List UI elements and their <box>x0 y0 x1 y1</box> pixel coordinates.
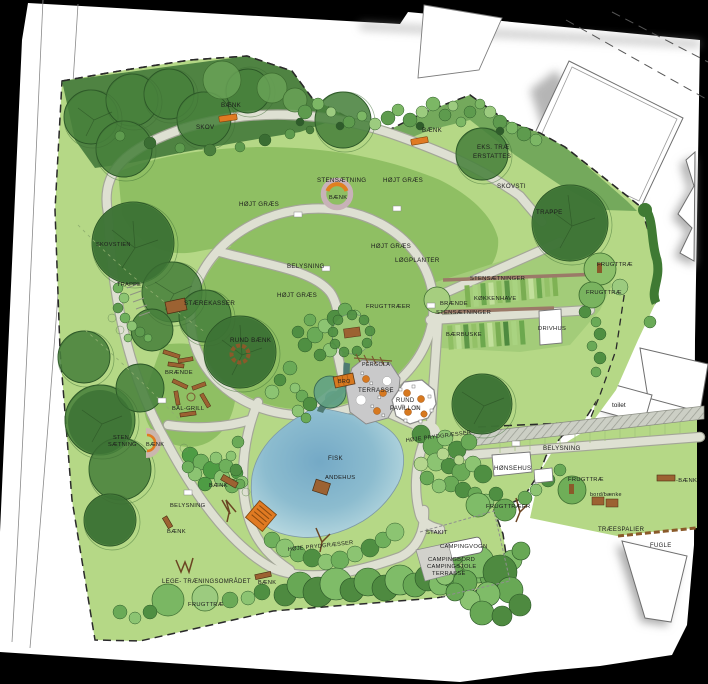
svg-text:LEGE- TRÆNINGSOMRÅDET: LEGE- TRÆNINGSOMRÅDET <box>162 578 251 585</box>
svg-text:HØNSEHUS: HØNSEHUS <box>494 465 531 472</box>
svg-text:BÆNK: BÆNK <box>146 442 164 448</box>
svg-text:BÅL-GRILL: BÅL-GRILL <box>172 405 205 412</box>
svg-text:BELYSNING: BELYSNING <box>543 445 581 452</box>
svg-text:RUND: RUND <box>396 398 415 404</box>
svg-text:SÆTNING: SÆTNING <box>108 442 137 448</box>
svg-text:STENSÆTNINGER: STENSÆTNINGER <box>470 276 525 282</box>
svg-text:ERSTATTES: ERSTATTES <box>473 153 511 160</box>
svg-text:-BÆNK: -BÆNK <box>676 478 697 484</box>
svg-text:SKOVSTI: SKOVSTI <box>497 183 526 190</box>
svg-text:STENSÆTNING: STENSÆTNING <box>317 177 366 184</box>
svg-text:FRUGTTRÆER: FRUGTTRÆER <box>486 504 531 510</box>
svg-text:HØJT GRÆS: HØJT GRÆS <box>383 177 423 184</box>
svg-text:BELYSNING: BELYSNING <box>287 263 325 270</box>
svg-text:RUND BÆNK: RUND BÆNK <box>230 337 272 344</box>
svg-text:FRUGTTRÆ: FRUGTTRÆ <box>597 262 633 268</box>
svg-text:BRO: BRO <box>338 379 351 385</box>
svg-text:SKOVSTIEN: SKOVSTIEN <box>96 242 131 248</box>
svg-text:LØGPLANTER: LØGPLANTER <box>395 257 440 264</box>
svg-text:BÆNK: BÆNK <box>329 195 347 201</box>
svg-text:FUGLE: FUGLE <box>650 543 672 549</box>
svg-text:STAKIT: STAKIT <box>426 530 448 536</box>
svg-text:STEN-: STEN- <box>113 435 131 441</box>
svg-text:CAMPINGBORD: CAMPINGBORD <box>428 557 475 563</box>
svg-text:STÆREKASSER: STÆREKASSER <box>184 300 235 307</box>
svg-text:TRÆESPALIER: TRÆESPALIER <box>598 527 645 533</box>
svg-text:CAMPINGSTOLE: CAMPINGSTOLE <box>427 564 477 570</box>
svg-text:BÆRBUSKE: BÆRBUSKE <box>446 332 482 338</box>
svg-text:FISK: FISK <box>328 455 344 462</box>
svg-text:BÆNK: BÆNK <box>422 127 443 134</box>
svg-text:bord/bænke: bord/bænke <box>590 492 622 498</box>
svg-text:toilet: toilet <box>612 402 626 409</box>
svg-text:BRÆNDE: BRÆNDE <box>440 301 468 307</box>
svg-text:TRAPPE: TRAPPE <box>536 209 563 216</box>
svg-text:TERRASSE: TERRASSE <box>432 571 466 577</box>
svg-text:BÆNK: BÆNK <box>167 529 186 535</box>
svg-text:FRUGTTRÆER: FRUGTTRÆER <box>366 304 411 310</box>
svg-text:BRÆNDE: BRÆNDE <box>165 370 193 376</box>
svg-text:BÆNK: BÆNK <box>209 483 228 489</box>
svg-text:BÆNK: BÆNK <box>221 102 242 109</box>
svg-text:HØJT GRÆS: HØJT GRÆS <box>371 243 411 250</box>
svg-text:CAMPINGVOGN: CAMPINGVOGN <box>440 544 487 550</box>
svg-text:TERRASSE: TERRASSE <box>358 387 394 394</box>
svg-text:HØJT GRÆS: HØJT GRÆS <box>239 201 279 208</box>
svg-text:DRIVHUS: DRIVHUS <box>538 326 566 332</box>
svg-text:BÆNK: BÆNK <box>258 580 276 586</box>
svg-text:STENSÆTNINGER: STENSÆTNINGER <box>436 310 491 316</box>
svg-text:HØJT GRÆS: HØJT GRÆS <box>277 292 317 299</box>
svg-text:FRUGTTRÆ: FRUGTTRÆ <box>568 477 604 483</box>
svg-text:TRAPPE: TRAPPE <box>117 282 141 288</box>
svg-text:FRUGTTRÆ: FRUGTTRÆ <box>188 602 224 608</box>
svg-text:ANDEHUS: ANDEHUS <box>325 475 355 481</box>
svg-text:FRUGTTRÆ: FRUGTTRÆ <box>586 290 622 296</box>
svg-text:BELYSNING: BELYSNING <box>170 503 206 509</box>
svg-text:EKS. TRÆ: EKS. TRÆ <box>477 144 510 151</box>
svg-text:SKOV: SKOV <box>196 124 215 131</box>
svg-text:PAVILLON: PAVILLON <box>390 406 421 412</box>
svg-text:PERGOLA: PERGOLA <box>362 362 390 368</box>
svg-text:KØKKENHAVE: KØKKENHAVE <box>474 296 517 302</box>
